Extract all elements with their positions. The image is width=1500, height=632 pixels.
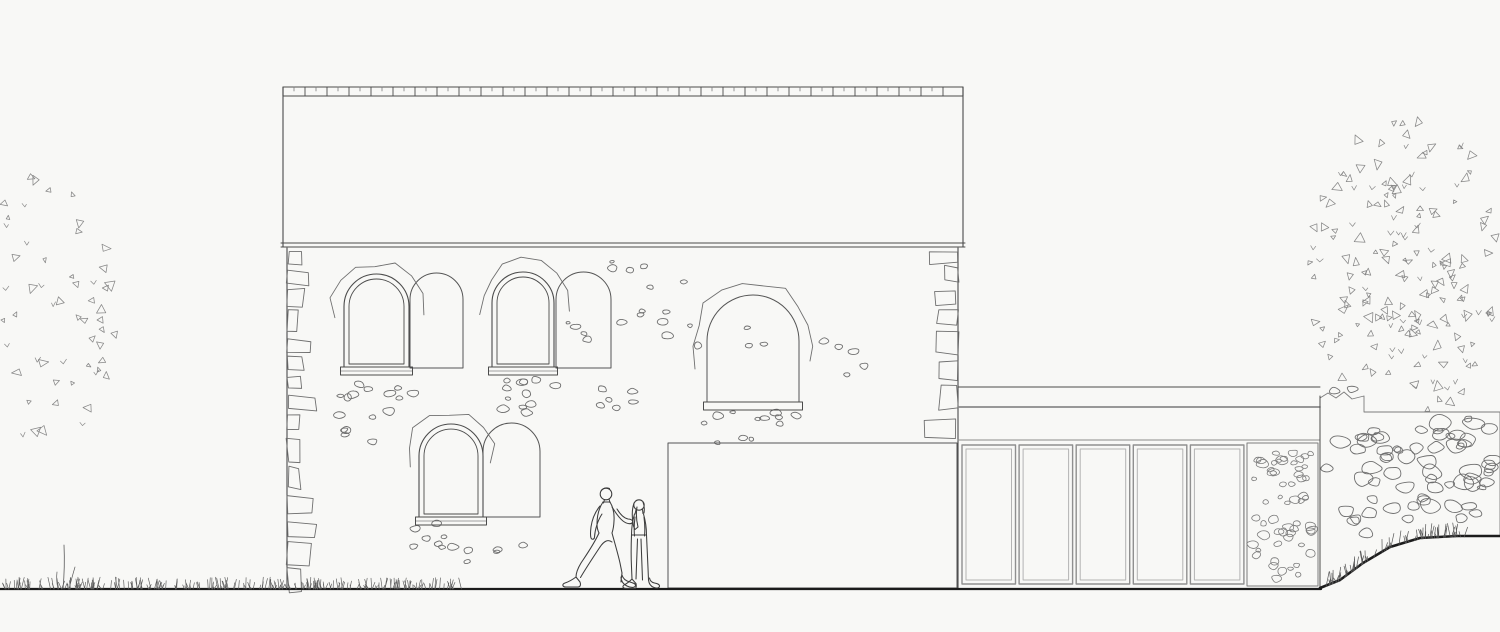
elevation-canvas [0,0,1500,632]
hatched-arch-infills [410,272,813,517]
window-lower-left [410,414,495,525]
people [563,488,660,589]
infill-upper-left [410,273,463,368]
right-tree [1308,117,1499,412]
hatched-demolition-panel [668,443,957,588]
stone-wall [287,248,958,589]
infill-lower [483,423,540,517]
walking-woman [623,500,660,589]
stone-bank [1320,386,1500,588]
elevation-drawing [0,0,1500,632]
glazing-panel [1133,445,1187,584]
tiled-roof [281,87,965,247]
stone-pier [1247,443,1318,586]
glazing-panel [1076,445,1130,584]
glazing-panel [1019,445,1073,584]
corner-quoins [286,252,959,593]
left-tree [0,174,117,437]
glazed-extension [958,387,1320,586]
walking-man [563,488,636,588]
glazing-panel [962,445,1016,584]
glazing-panel [1190,445,1244,584]
infill-upper-mid [556,272,611,368]
wall-stone-patches [334,261,868,564]
infill-central [693,284,813,410]
grass [2,545,461,589]
